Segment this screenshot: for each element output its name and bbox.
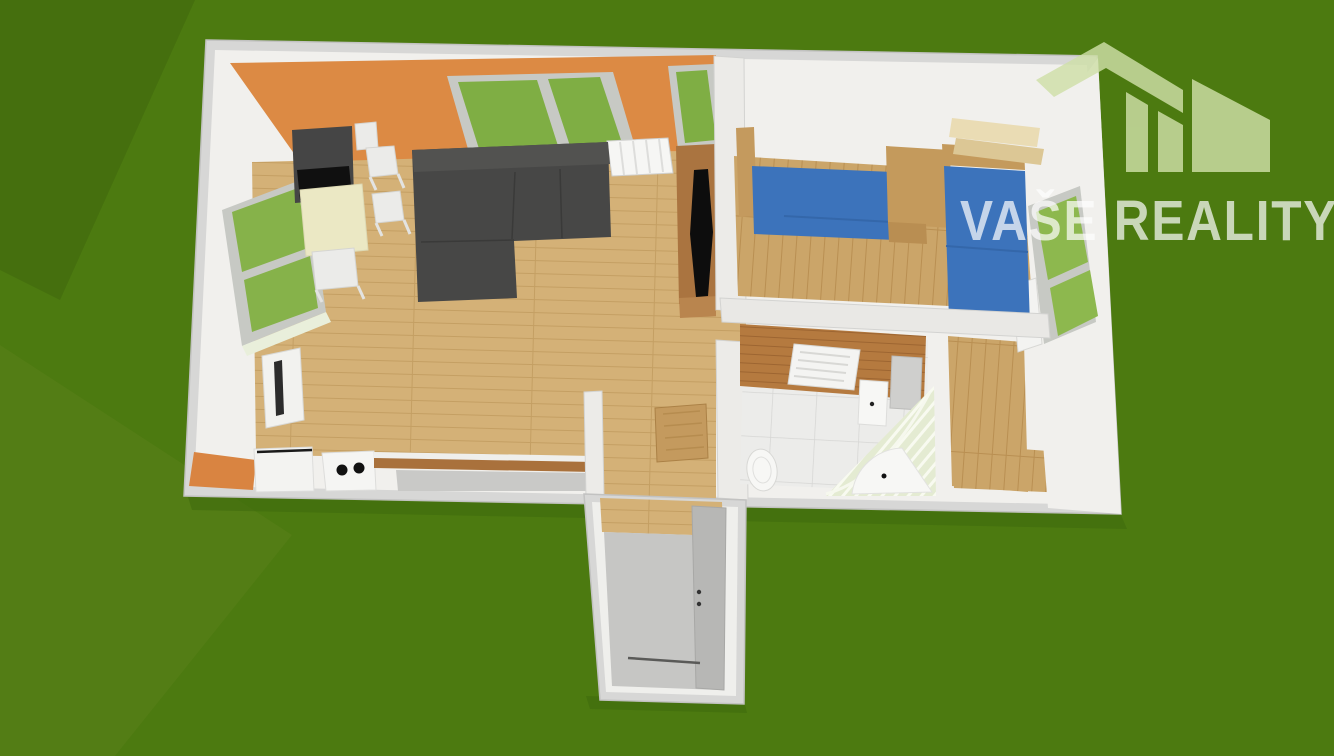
shower-drain bbox=[882, 474, 887, 479]
cabinet-step bbox=[888, 222, 927, 244]
dining-chair bbox=[372, 191, 404, 223]
dining-chair bbox=[355, 122, 378, 150]
stove bbox=[322, 451, 376, 491]
hall-wall-stub bbox=[584, 391, 604, 498]
apartment-building bbox=[184, 40, 1121, 514]
dining-table bbox=[300, 184, 368, 256]
stove-burner bbox=[354, 463, 365, 474]
bathroom-cabinet bbox=[890, 356, 922, 410]
dining-chair bbox=[366, 146, 398, 177]
counter-top-gray bbox=[396, 470, 594, 491]
tv-unit bbox=[676, 144, 720, 318]
stove-burner bbox=[337, 465, 348, 476]
towel-radiator bbox=[788, 344, 860, 390]
bathroom bbox=[740, 324, 936, 496]
floorplan-3d-render: VAŠE REALITY bbox=[0, 0, 1334, 756]
cabinet-body bbox=[886, 146, 952, 228]
towel-radiator-frame bbox=[788, 344, 860, 390]
sink bbox=[858, 380, 888, 426]
fridge bbox=[262, 348, 304, 428]
kitchen-cabinet bbox=[254, 447, 314, 492]
entry-corridor bbox=[584, 494, 746, 704]
sofa-cushion-blue bbox=[752, 166, 895, 240]
door-handle bbox=[697, 602, 701, 606]
dining-chair bbox=[312, 248, 358, 290]
sink-drain bbox=[870, 402, 874, 406]
tv-cabinet-front bbox=[679, 296, 720, 318]
logo-bar bbox=[1126, 92, 1148, 172]
door-handle bbox=[697, 590, 701, 594]
watermark-text: VAŠE REALITY bbox=[960, 188, 1334, 253]
floorplan-render-page: VAŠE REALITY bbox=[0, 0, 1334, 756]
